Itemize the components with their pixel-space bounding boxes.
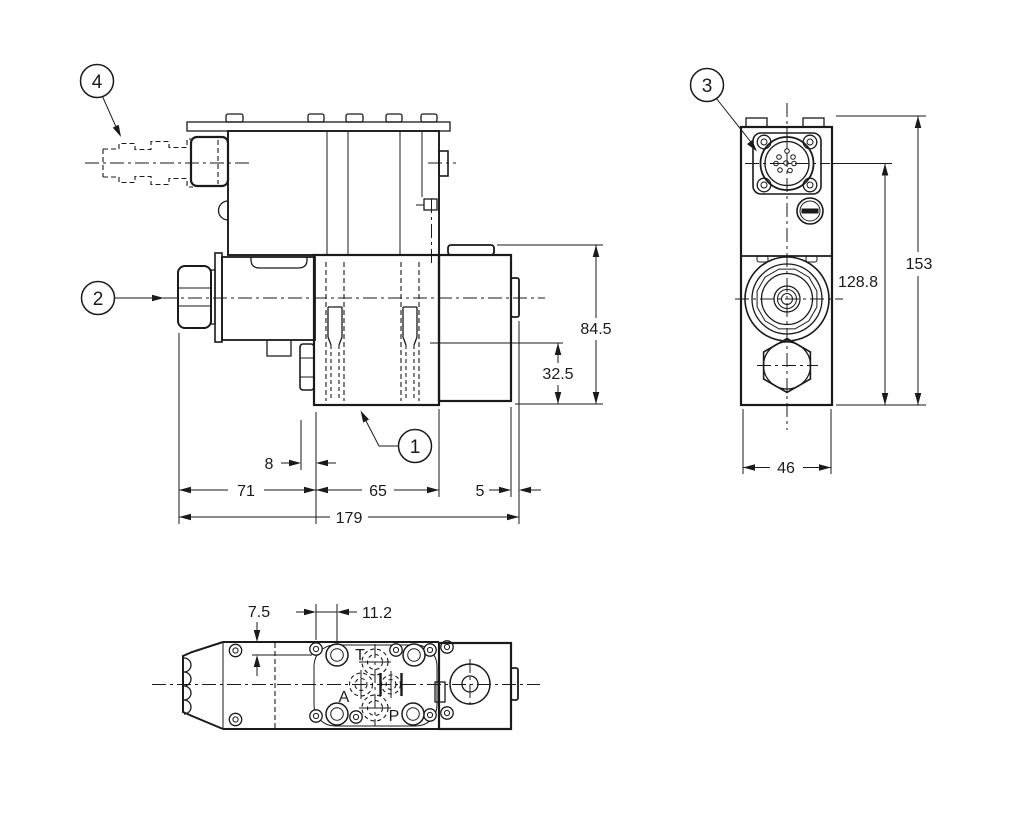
- dim-84-5: 84.5: [580, 321, 611, 338]
- electrical-connector-stub: [191, 137, 228, 186]
- hex-plug: [300, 344, 314, 390]
- top-plate: [187, 114, 450, 131]
- dim-179: 179: [336, 510, 363, 527]
- port-t-label: T: [355, 647, 365, 664]
- dim-11-2: 11.2: [362, 605, 392, 622]
- manual-override-nut: [178, 266, 215, 328]
- electronics-housing: [219, 131, 449, 255]
- callout-3: 3: [691, 69, 760, 154]
- bottom-screws: [229, 641, 453, 726]
- nut-serrations: [184, 658, 191, 714]
- valve-dimensional-drawing: 84.5 32.5 8 71: [0, 0, 1012, 822]
- bottom-dims: 7.5 11.2: [248, 604, 392, 676]
- dim-128-8: 128.8: [838, 274, 878, 291]
- front-dims-right: 84.5 32.5: [430, 245, 612, 404]
- callout-4: 4: [81, 65, 124, 139]
- dim-5: 5: [476, 483, 485, 500]
- bleed-screw: [424, 199, 437, 210]
- connector-pins: [774, 149, 797, 173]
- front-view: 84.5 32.5 8 71: [81, 65, 612, 528]
- dim-65: 65: [369, 483, 387, 500]
- slotted-screw: [797, 198, 823, 224]
- callout-1-label: 1: [410, 437, 421, 458]
- dim-8: 8: [265, 456, 274, 473]
- valve-body: [300, 255, 439, 405]
- front-dims-bottom: 8 71 65 5 179: [179, 321, 541, 527]
- callout-4-label: 4: [92, 72, 103, 93]
- right-solenoid: [439, 245, 519, 401]
- side-dims: 153 128.8 46: [743, 116, 932, 477]
- dim-32-5: 32.5: [542, 366, 573, 383]
- callout-2-label: 2: [93, 289, 104, 310]
- port-p-label: P: [389, 708, 400, 725]
- callout-1: 1: [358, 409, 432, 463]
- callout-3-label: 3: [702, 76, 713, 97]
- engineering-drawing-page: 84.5 32.5 8 71: [0, 0, 1012, 822]
- dim-46: 46: [777, 460, 795, 477]
- bottom-view: T A P: [152, 604, 540, 729]
- mounting-bolts-hidden: [326, 262, 419, 401]
- callout-2: 2: [82, 282, 165, 315]
- side-view: 153 128.8 46 3: [691, 69, 933, 478]
- solenoid-tube: [215, 253, 315, 356]
- dim-71: 71: [237, 483, 255, 500]
- dim-7-5: 7.5: [248, 604, 270, 621]
- dim-153: 153: [906, 256, 933, 273]
